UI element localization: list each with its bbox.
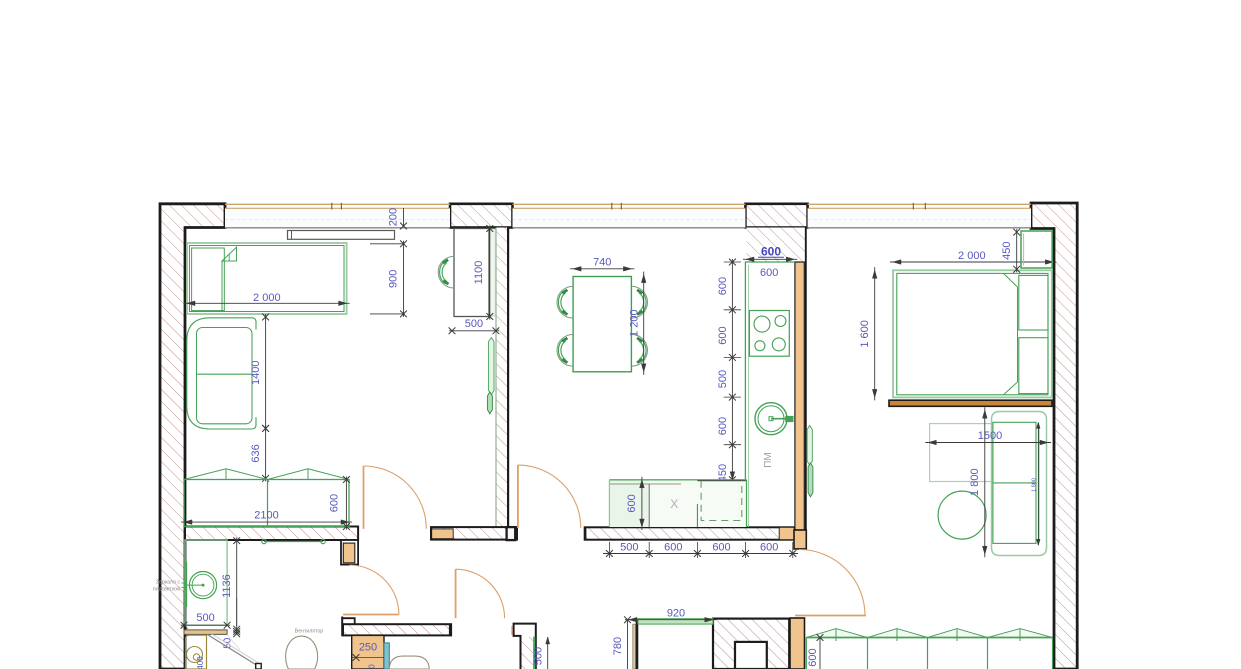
svg-text:600: 600 — [807, 648, 819, 666]
svg-text:740: 740 — [593, 257, 611, 269]
svg-text:Зеркало с: Зеркало с — [156, 580, 181, 586]
svg-text:636: 636 — [250, 444, 262, 462]
svg-text:1 200: 1 200 — [629, 309, 641, 337]
svg-text:1500: 1500 — [978, 430, 1002, 442]
svg-text:600: 600 — [761, 244, 781, 258]
svg-text:500: 500 — [465, 318, 483, 330]
svg-text:Вентилятор: Вентилятор — [295, 629, 324, 635]
svg-text:500: 500 — [533, 647, 545, 665]
svg-text:900: 900 — [388, 270, 400, 288]
svg-text:600: 600 — [717, 277, 729, 295]
svg-text:600: 600 — [664, 542, 682, 554]
svg-text:250: 250 — [359, 642, 377, 654]
svg-text:1 600: 1 600 — [859, 320, 871, 348]
svg-text:500: 500 — [196, 612, 214, 624]
svg-text:450: 450 — [1001, 241, 1013, 259]
svg-text:ПМ: ПМ — [763, 452, 774, 468]
svg-text:1100: 1100 — [473, 261, 485, 285]
svg-text:600: 600 — [626, 494, 638, 512]
svg-text:1400: 1400 — [250, 360, 262, 384]
svg-text:780: 780 — [612, 637, 624, 655]
svg-text:500: 500 — [717, 370, 729, 388]
svg-text:600: 600 — [760, 542, 778, 554]
svg-text:600: 600 — [712, 542, 730, 554]
svg-text:400: 400 — [196, 656, 205, 669]
svg-text:600: 600 — [717, 417, 729, 435]
svg-text:1136: 1136 — [221, 574, 233, 598]
svg-text:2 000: 2 000 — [253, 292, 281, 304]
svg-text:600: 600 — [760, 267, 778, 279]
svg-text:подсветкой: подсветкой — [153, 586, 180, 593]
svg-text:600: 600 — [717, 326, 729, 344]
svg-text:920: 920 — [667, 607, 685, 619]
svg-text:0: 0 — [368, 664, 377, 669]
svg-text:600: 600 — [329, 494, 341, 512]
svg-text:1 800: 1 800 — [1032, 478, 1038, 492]
svg-text:1 800: 1 800 — [969, 468, 981, 496]
svg-text:500: 500 — [620, 542, 638, 554]
svg-text:2100: 2100 — [254, 510, 278, 522]
svg-text:X: X — [670, 497, 678, 511]
svg-text:200: 200 — [388, 208, 400, 226]
svg-text:2 000: 2 000 — [958, 250, 986, 262]
